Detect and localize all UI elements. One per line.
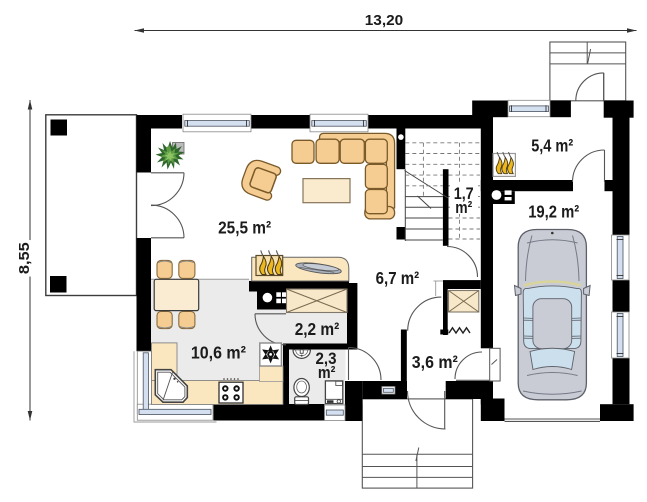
svg-text:m²: m² (455, 198, 472, 217)
svg-text:19,2 m²: 19,2 m² (528, 201, 579, 221)
svg-text:6,7 m²: 6,7 m² (376, 268, 420, 288)
svg-text:5,4 m²: 5,4 m² (531, 136, 573, 156)
svg-text:8,55: 8,55 (16, 242, 33, 274)
svg-text:13,20: 13,20 (365, 12, 404, 29)
svg-text:10,6 m²: 10,6 m² (191, 343, 246, 363)
svg-text:25,5 m²: 25,5 m² (218, 218, 271, 238)
svg-text:m²: m² (318, 363, 336, 382)
svg-text:3,6 m²: 3,6 m² (412, 352, 458, 372)
svg-text:2,2 m²: 2,2 m² (295, 319, 340, 339)
